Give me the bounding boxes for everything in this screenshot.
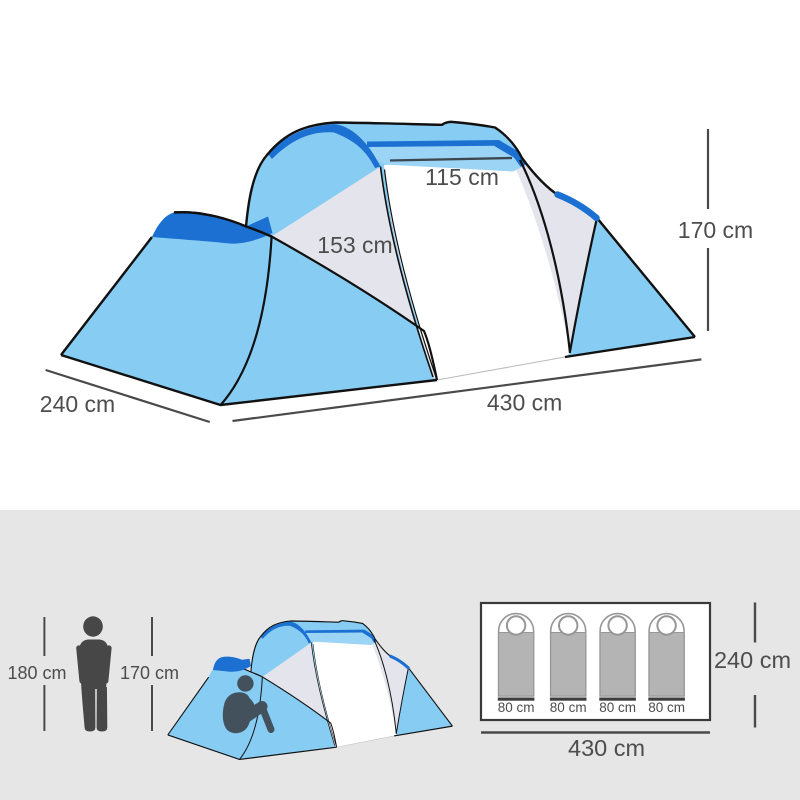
svg-text:170 cm: 170 cm <box>120 663 179 683</box>
svg-text:180 cm: 180 cm <box>7 663 66 683</box>
svg-text:430 cm: 430 cm <box>568 735 645 761</box>
svg-text:153 cm: 153 cm <box>317 232 392 258</box>
svg-text:240 cm: 240 cm <box>40 391 115 417</box>
svg-text:430 cm: 430 cm <box>487 390 562 416</box>
svg-text:115 cm: 115 cm <box>425 164 499 190</box>
svg-text:80 cm: 80 cm <box>498 700 535 715</box>
svg-text:170 cm: 170 cm <box>678 217 753 243</box>
svg-text:240 cm: 240 cm <box>714 647 791 673</box>
